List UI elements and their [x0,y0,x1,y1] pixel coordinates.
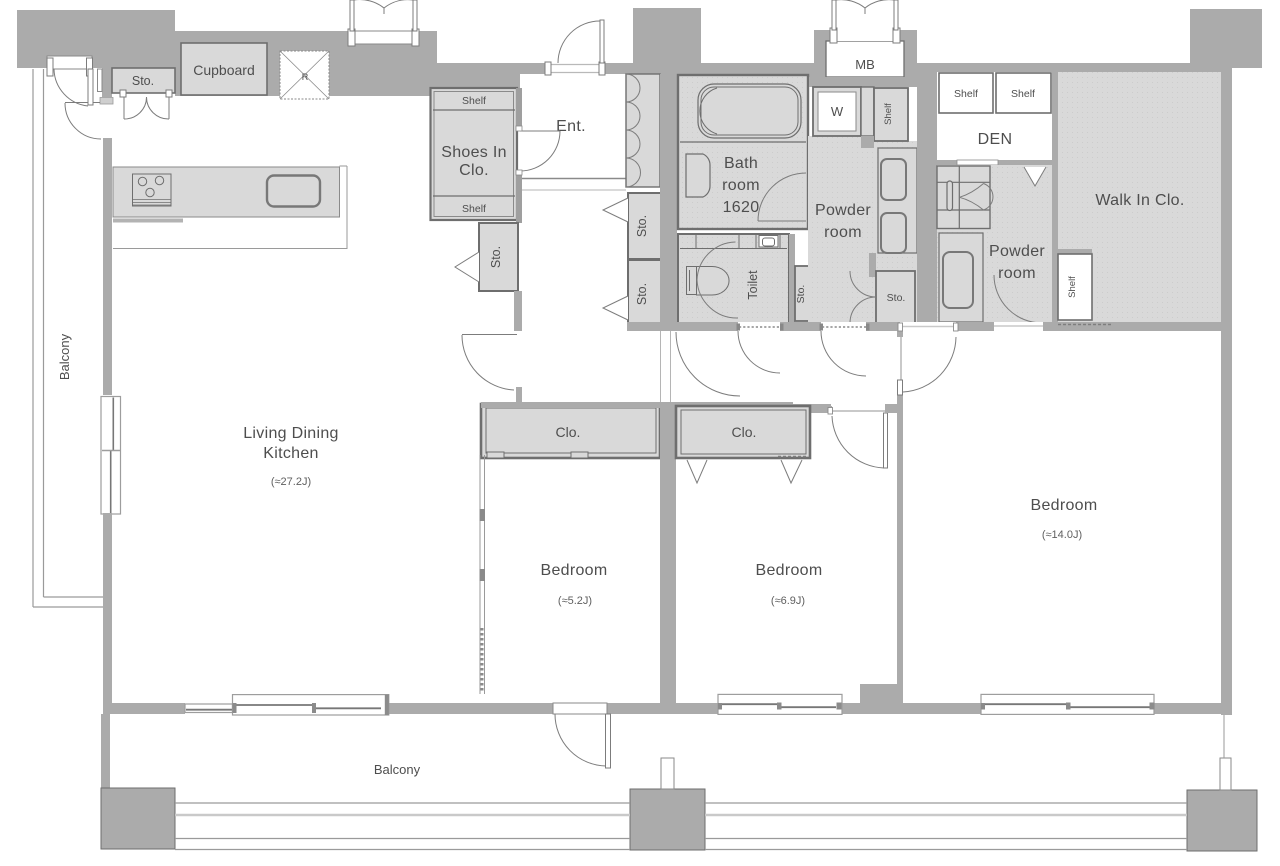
svg-text:Ent.: Ent. [556,118,586,135]
svg-text:Shelf: Shelf [462,95,486,107]
svg-text:Clo.: Clo. [556,424,581,440]
svg-text:(≈14.0J): (≈14.0J) [1042,529,1082,541]
svg-text:Clo.: Clo. [459,162,489,179]
svg-text:Sto.: Sto. [795,285,807,304]
svg-text:DEN: DEN [978,131,1013,148]
svg-text:room: room [998,265,1036,282]
svg-text:Sto.: Sto. [635,215,649,237]
svg-text:Sto.: Sto. [887,292,906,304]
svg-text:Toilet: Toilet [746,270,760,300]
svg-text:1620: 1620 [723,199,760,216]
svg-text:(≈27.2J): (≈27.2J) [271,476,311,488]
svg-text:Bath: Bath [724,155,758,172]
svg-text:Shelf: Shelf [883,103,894,125]
svg-text:Cupboard: Cupboard [193,62,255,78]
svg-text:Powder: Powder [815,202,871,219]
svg-text:R: R [302,72,309,82]
svg-text:Shoes In: Shoes In [441,144,507,161]
svg-text:Sto.: Sto. [489,246,503,268]
svg-text:Walk In Clo.: Walk In Clo. [1095,192,1184,209]
svg-text:Balcony: Balcony [374,762,421,777]
svg-text:Bedroom: Bedroom [540,562,607,579]
svg-text:Shelf: Shelf [954,88,978,100]
svg-text:room: room [722,177,760,194]
svg-text:Balcony: Balcony [57,333,72,380]
svg-text:Sto.: Sto. [635,283,649,305]
svg-text:Living Dining: Living Dining [243,425,339,442]
svg-text:Bedroom: Bedroom [1030,497,1097,514]
svg-text:Shelf: Shelf [462,203,486,215]
svg-text:room: room [824,224,862,241]
svg-text:Shelf: Shelf [1067,276,1078,298]
svg-text:(≈6.9J): (≈6.9J) [771,595,805,607]
svg-text:Sto.: Sto. [132,74,154,88]
svg-text:Powder: Powder [989,243,1045,260]
svg-text:MB: MB [855,57,875,72]
svg-text:Shelf: Shelf [1011,88,1035,100]
svg-text:(≈5.2J): (≈5.2J) [558,595,592,607]
svg-text:Clo.: Clo. [732,424,757,440]
svg-text:Kitchen: Kitchen [263,445,318,462]
svg-text:Bedroom: Bedroom [755,562,822,579]
svg-text:W: W [831,104,844,119]
